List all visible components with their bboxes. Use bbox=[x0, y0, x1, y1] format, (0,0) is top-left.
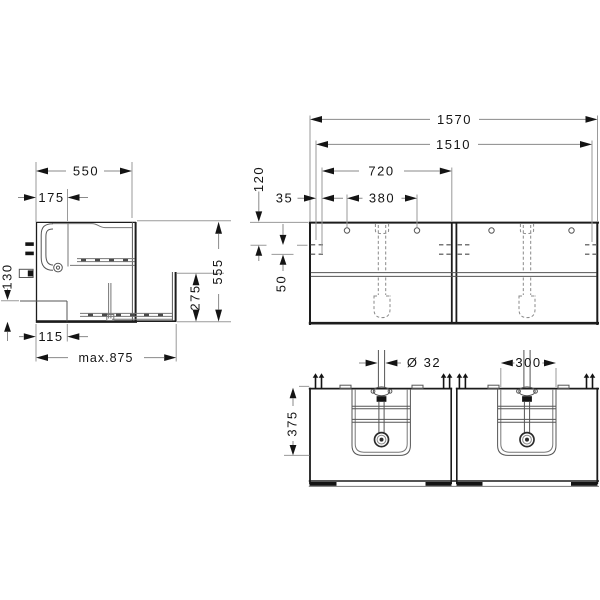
mounting-pins bbox=[313, 373, 596, 389]
mounting-rail-dashes bbox=[311, 245, 597, 254]
dim-115: 115 bbox=[19, 329, 88, 344]
side-bottom-drawer-open bbox=[80, 272, 176, 321]
bottom-view: Ø 32 300 375 bbox=[284, 350, 599, 486]
drain-trap-hidden-right bbox=[519, 224, 535, 318]
dim-50-label: 50 bbox=[274, 275, 289, 292]
front-extension-lines bbox=[250, 116, 598, 255]
drain-trap-hidden-left bbox=[374, 224, 390, 318]
dim-720: 720 bbox=[322, 163, 452, 178]
dim-375-label: 375 bbox=[285, 410, 300, 436]
dim-300-label: 300 bbox=[515, 355, 541, 370]
dim-1570: 1570 bbox=[310, 112, 598, 127]
dim-175: 175 bbox=[18, 190, 88, 205]
dim-130-label: 130 bbox=[0, 263, 15, 289]
dim-50: 50 bbox=[274, 224, 289, 292]
dim-120-label: 120 bbox=[251, 166, 266, 192]
dim-555: 555 bbox=[210, 222, 225, 322]
dim-diameter-32-label: Ø 32 bbox=[407, 355, 441, 370]
dim-380: 380 bbox=[347, 190, 417, 205]
technical-drawing-page: 550 175 130 115 max.875 bbox=[0, 0, 600, 600]
dim-max-875-label: max.875 bbox=[79, 351, 134, 365]
dim-max-875: max.875 bbox=[36, 351, 176, 365]
dim-120: 120 bbox=[251, 166, 266, 261]
vanity-technical-drawing: 550 175 130 115 max.875 bbox=[0, 0, 600, 600]
dim-555-label: 555 bbox=[210, 258, 225, 284]
dim-35: 35 bbox=[276, 190, 343, 205]
dim-115-label: 115 bbox=[38, 329, 63, 344]
side-water-connections bbox=[19, 224, 62, 278]
dim-300: 300 bbox=[501, 355, 556, 370]
drain-assembly-left bbox=[371, 350, 392, 447]
dim-550-label: 550 bbox=[73, 164, 99, 179]
water-valve-stub bbox=[25, 252, 34, 256]
side-top-drawer bbox=[68, 223, 135, 267]
dim-1510-label: 1510 bbox=[436, 137, 471, 152]
dim-1570-label: 1570 bbox=[437, 112, 472, 127]
dim-375: 375 bbox=[285, 388, 300, 456]
dim-380-label: 380 bbox=[369, 190, 395, 205]
dim-diameter-32: Ø 32 bbox=[359, 355, 441, 370]
drawer-gap-line bbox=[311, 273, 597, 277]
dim-1510: 1510 bbox=[316, 137, 592, 152]
bottom-extension-lines bbox=[284, 368, 556, 455]
side-cabinet-outline bbox=[20, 222, 177, 322]
dim-130: 130 bbox=[0, 263, 15, 341]
dim-35-label: 35 bbox=[276, 190, 293, 205]
dim-175-label: 175 bbox=[38, 190, 64, 205]
side-view: 550 175 130 115 max.875 bbox=[0, 162, 231, 365]
front-cabinet-outline bbox=[309, 222, 599, 325]
dim-550: 550 bbox=[36, 164, 132, 179]
dim-275: 275 bbox=[188, 273, 203, 321]
dim-720-label: 720 bbox=[368, 163, 394, 178]
dim-275-label: 275 bbox=[188, 284, 203, 310]
front-view: 1570 1510 720 35 380 120 bbox=[250, 112, 599, 325]
water-valve-stub bbox=[25, 242, 34, 246]
